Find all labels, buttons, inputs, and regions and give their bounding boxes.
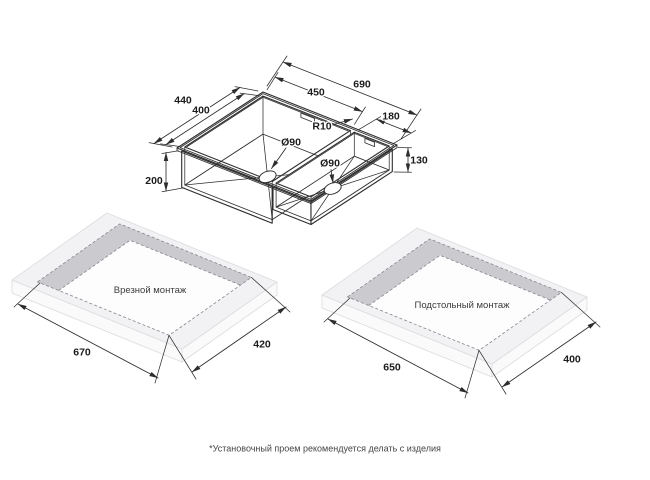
dim-cutout-width: 400 [563,354,581,366]
dim-cutout-width: 420 [253,339,271,351]
dim-cutout-length: 650 [383,362,401,374]
mounting-title: Врезной монтаж [114,285,187,296]
dim-small-drain: Ø90 [320,158,340,170]
dim-small-bowl-depth: 130 [410,155,428,167]
dim-corner-radius: R10 [312,121,331,133]
dim-bowl-depth: 200 [145,175,163,187]
dim-bowl-width: 400 [192,105,210,117]
dim-overall-length: 690 [353,79,371,91]
dim-small-bowl-length: 180 [382,111,400,123]
dim-cutout-length: 670 [73,347,91,359]
mounting-title: Подстольный монтаж [415,300,511,311]
sink-technical-drawing: Врезной монтаж 670 420 Подстольный монта… [0,0,650,480]
footnote: *Установочный проем рекомендуется делать… [209,444,441,454]
dim-main-drain: Ø90 [281,137,301,149]
dim-overall-width: 440 [174,95,192,107]
dim-bowl-length: 450 [307,87,325,99]
